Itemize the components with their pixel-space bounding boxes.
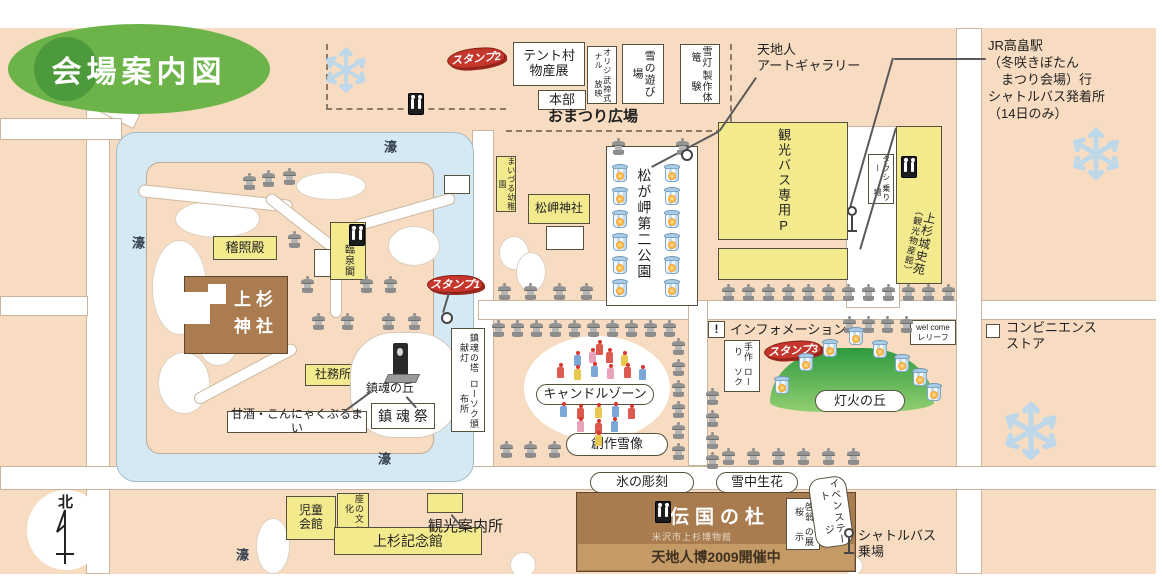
stone-lantern-icon [747, 448, 760, 465]
keishoden-hall: 稽照殿 [213, 236, 277, 260]
candle-icon [595, 407, 602, 418]
candle-icon [606, 352, 613, 363]
stone-lantern-icon [283, 168, 296, 185]
stone-lantern-icon [742, 284, 755, 301]
jr-line2: （冬咲きぼたん [988, 55, 1105, 72]
snow-lantern-icon [774, 376, 790, 395]
parking-strip [718, 248, 848, 280]
chinkon-tower-col1: 鎮魂の塔 献灯 [458, 329, 478, 378]
stone-lantern-icon [625, 320, 638, 337]
handmade-col1: 手作り [732, 341, 752, 362]
joshien-building: 上杉城史苑 （観光物産館） [896, 126, 942, 284]
workshop-col1: 雪灯篭 [689, 45, 711, 70]
matsugasaki-shrine-building [546, 226, 584, 250]
north-arrow-icon [52, 508, 78, 573]
stone-lantern-icon [942, 284, 955, 301]
stone-lantern-icon [797, 448, 810, 465]
snowflake-icon [322, 46, 370, 94]
stone-lantern-icon [612, 138, 625, 155]
candle-icon [624, 367, 631, 378]
restroom-icon [655, 501, 671, 523]
snow-lantern-icon [822, 339, 838, 358]
stone-lantern-icon [288, 231, 301, 248]
sakura-col2: の展示 [793, 524, 813, 549]
page-title: 会場案内図 [52, 47, 227, 91]
snow-lantern-icon [612, 256, 628, 275]
welcome-relief-box: wel come レリーフ [910, 320, 956, 345]
shuttle-line2: 乗場 [858, 544, 936, 560]
stone-lantern-icon [706, 452, 719, 469]
snow-lantern-icon [872, 340, 888, 359]
jr-shuttle-label: JR高畠駅 （冬咲きぼたん まつり会場）行 シャトルバス発着所 （14日のみ） [988, 38, 1105, 122]
stone-lantern-icon [492, 320, 505, 337]
snowflake-icon [1068, 126, 1124, 182]
handmade-candle-box: 手作り ローソク [724, 340, 760, 392]
welcome-line1: wel come [916, 323, 950, 332]
stone-lantern-icon [847, 448, 860, 465]
bottom-margin [0, 574, 1162, 580]
stone-lantern-icon [822, 284, 835, 301]
stone-lantern-icon [549, 320, 562, 337]
stone-lantern-icon [822, 448, 835, 465]
road-mid-horizontal [478, 300, 1162, 320]
uesugi-museum-label: 米沢市上杉博物館 [652, 530, 772, 543]
stone-lantern-icon [312, 313, 325, 330]
stone-lantern-icon [663, 320, 676, 337]
shuttle-line1: シャトルバス [858, 528, 936, 544]
stone-lantern-icon [922, 284, 935, 301]
lantern-workshop-box: 雪灯篭 製作体験 [680, 44, 720, 104]
chinkon-festival-box: 鎮 魂 祭 [371, 403, 435, 429]
moat-label: 濠 [380, 140, 399, 155]
matsugasaki-park2-label: 松が岬第二公園 [636, 168, 651, 280]
candle-icon [560, 406, 567, 417]
snow-lantern-icon [664, 279, 680, 298]
tenchijin-gallery-label: 天地人 アートギャラリー [757, 42, 860, 75]
snow-lantern-icon [612, 187, 628, 206]
road-right-vertical [956, 28, 982, 574]
uesugi-line2: 神社 [226, 313, 286, 340]
buteishiki-col1: オリジナル [593, 47, 611, 75]
chinkon-tower-candle-box: 鎮魂の塔 献灯 ローソク頒布所 [451, 328, 485, 432]
chinkon-monument-icon [386, 343, 418, 383]
snow-lantern-icon [798, 353, 814, 372]
ice-sculpture-label: 氷の彫刻 [590, 472, 694, 493]
welcome-line2: レリーフ [917, 333, 949, 342]
information-label: インフォメーション [730, 322, 846, 338]
moat-label: 濠 [128, 236, 147, 251]
stone-lantern-icon [672, 443, 685, 460]
snow-lantern-icon [894, 354, 910, 373]
stone-lantern-icon [782, 284, 795, 301]
stone-lantern-icon [772, 448, 785, 465]
road-candle-vertical [688, 300, 708, 466]
stone-lantern-icon [706, 410, 719, 427]
stone-lantern-icon [606, 320, 619, 337]
right-margin [1156, 0, 1162, 580]
headquarters-box: 本部 [538, 90, 586, 110]
convenience-store-icon [986, 324, 1000, 338]
road-top-left [0, 118, 122, 140]
point-marker [441, 312, 453, 324]
tent-village-line1: テント村 [523, 49, 575, 64]
gallery-line1: 天地人 [757, 42, 860, 58]
convenience-line1: コンビニエンス [1006, 320, 1097, 336]
shrine-courtyard [184, 292, 210, 324]
stone-lantern-icon [262, 170, 275, 187]
stone-lantern-icon [672, 422, 685, 439]
stone-lantern-icon [902, 284, 915, 301]
snow-lantern-icon [612, 164, 628, 183]
tent-village-line2: 物産展 [529, 64, 568, 79]
moat-label: 濠 [232, 548, 251, 563]
convenience-line2: ストア [1006, 336, 1097, 352]
stone-lantern-icon [498, 283, 511, 300]
tourist-info-label: 観光案内所 [428, 518, 503, 537]
stone-lantern-icon [587, 320, 600, 337]
stone-lantern-icon [553, 283, 566, 300]
candle-icon [595, 435, 602, 446]
stone-lantern-icon [580, 283, 593, 300]
childrens-hall: 児童 会館 [286, 496, 336, 540]
candle-icon [591, 366, 598, 377]
stone-lantern-icon [881, 316, 894, 333]
stone-lantern-icon [408, 313, 421, 330]
candle-icon [611, 421, 618, 432]
stone-lantern-icon [672, 380, 685, 397]
snow-lantern-icon [664, 187, 680, 206]
snow-sculpture-label: 創作雪像 [566, 433, 668, 456]
joshien-label: 上杉城史苑 （観光物産館） [900, 205, 937, 278]
buteishiki-col2: 武禘式放映 [593, 75, 611, 103]
stone-lantern-icon [644, 320, 657, 337]
stone-lantern-icon [524, 283, 537, 300]
stone-lantern-icon [524, 441, 537, 458]
candle-zone-label: キャンドルゾーン [536, 384, 654, 405]
snow-patch [388, 226, 440, 266]
convenience-store-label: コンビニエンス ストア [1006, 320, 1097, 353]
uesugi-line1: 上杉 [226, 286, 286, 313]
tour-bus-parking-label: 観光バス専用P [776, 128, 790, 235]
shrine-courtyard [208, 284, 226, 304]
buteishiki-box: オリジナル 武禘式放映 [587, 46, 617, 104]
stone-lantern-icon [360, 276, 373, 293]
stone-lantern-icon [882, 284, 895, 301]
chinkon-hill-label: 鎮魂の丘 [366, 381, 414, 396]
snow-playground-box: 雪の遊び場 [622, 44, 664, 104]
tour-bus-parking: 観光バス専用P [718, 122, 848, 240]
snowflake-icon [1000, 400, 1062, 462]
stone-lantern-icon [243, 173, 256, 190]
candle-icon [639, 369, 646, 380]
road-mid-left [0, 296, 88, 316]
stone-lantern-icon [706, 388, 719, 405]
snow-lantern-icon [926, 383, 942, 402]
snow-patch [296, 172, 366, 200]
snow-lantern-icon [664, 210, 680, 229]
maizuru-kindergarten: まいづる幼稚園 [496, 156, 516, 212]
jr-line3: まつり会場）行 [988, 72, 1105, 89]
snow-lantern-icon [848, 327, 864, 346]
stone-lantern-icon [722, 284, 735, 301]
stone-lantern-icon [900, 316, 913, 333]
snow-lantern-icon [664, 256, 680, 275]
candle-icon [577, 421, 584, 432]
candle-icon [607, 368, 614, 379]
za-col1: 座の文化 [343, 494, 363, 525]
snow-lantern-icon [612, 279, 628, 298]
candle-icon [557, 367, 564, 378]
jr-line5: （14日のみ） [988, 106, 1105, 123]
candle-icon [574, 369, 581, 380]
gallery-line2: アートギャラリー [757, 58, 860, 74]
tent-village-box: テント村 物産展 [513, 42, 585, 86]
rinsenkaku-label: 臨泉閣 [343, 244, 354, 277]
restroom-icon [408, 93, 424, 115]
snow-lantern-icon [612, 233, 628, 252]
map-title-banner: 会場案内図 [8, 24, 270, 114]
tourist-info-building [427, 493, 463, 513]
stone-lantern-icon [706, 432, 719, 449]
stone-lantern-icon [802, 284, 815, 301]
stone-lantern-icon [384, 276, 397, 293]
restroom-icon [349, 224, 365, 246]
stone-lantern-icon [548, 441, 561, 458]
stage-col1: イベント [815, 477, 842, 514]
matsugasaki-shrine: 松岬神社 [528, 194, 590, 224]
stone-lantern-icon [341, 313, 354, 330]
signpost-icon [846, 206, 858, 234]
stone-lantern-icon [301, 276, 314, 293]
stone-lantern-icon [842, 284, 855, 301]
uesugi-shrine-label: 上杉 神社 [226, 286, 286, 344]
amazake-box: 甘酒・こんにゃくぶるまい [227, 411, 367, 433]
restroom-icon [901, 156, 917, 178]
stone-lantern-icon [530, 320, 543, 337]
signpost-icon [843, 528, 855, 556]
candle-icon [628, 408, 635, 419]
snow-lantern-icon [612, 210, 628, 229]
snow-flower-label: 雪中生花 [716, 472, 798, 493]
stone-lantern-icon [762, 284, 775, 301]
stone-lantern-icon [862, 284, 875, 301]
stone-lantern-icon [672, 338, 685, 355]
stamp1-badge: スタンプ1 [427, 275, 483, 293]
bridge [444, 175, 470, 194]
jr-line4: シャトルバス発着所 [988, 89, 1105, 106]
shuttle-bus-stop-label: シャトルバス 乗場 [858, 528, 936, 561]
leader-line [894, 58, 986, 60]
stone-lantern-icon [382, 313, 395, 330]
moat-label: 濠 [374, 452, 393, 467]
hill-of-lights-label: 灯火の丘 [815, 390, 905, 412]
point-marker [681, 149, 693, 161]
information-icon: ! [708, 321, 725, 338]
candle-icon [612, 406, 619, 417]
jido-line1: 児童 [299, 504, 323, 518]
stone-lantern-icon [568, 320, 581, 337]
handmade-col2: ローソク [732, 362, 752, 391]
stone-lantern-icon [722, 448, 735, 465]
jr-line1: JR高畠駅 [988, 38, 1105, 55]
stone-lantern-icon [672, 401, 685, 418]
candle-icon [596, 344, 603, 355]
chinkon-tower-col2: ローソク頒布所 [458, 378, 478, 431]
snow-patch [158, 352, 210, 414]
workshop-col2: 製作体験 [689, 70, 711, 103]
stone-lantern-icon [500, 441, 513, 458]
festival-plaza-label: おまつり広場 [548, 108, 638, 127]
jido-line2: 会館 [299, 518, 323, 532]
snow-lantern-icon [664, 233, 680, 252]
stone-lantern-icon [672, 359, 685, 376]
venue-map: 会場案内図 テント村 物産展 本部 オリジナル 武禘式放映 雪の遊び場 雪灯篭 … [0, 0, 1162, 580]
snow-lantern-icon [664, 164, 680, 183]
stone-lantern-icon [511, 320, 524, 337]
snow-patch [256, 518, 290, 574]
